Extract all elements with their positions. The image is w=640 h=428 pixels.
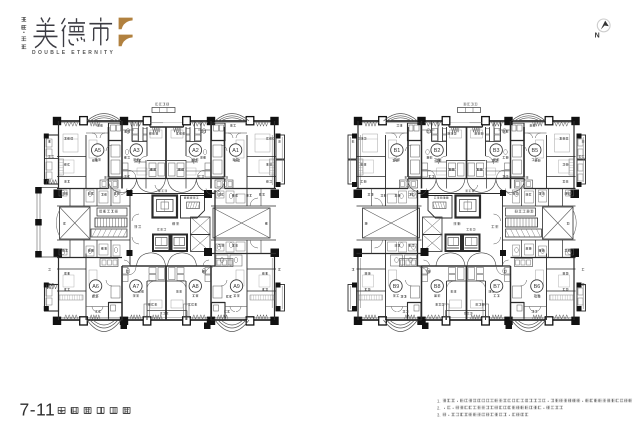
svg-text:B2: B2 bbox=[434, 148, 441, 154]
svg-text:A7: A7 bbox=[133, 284, 140, 290]
svg-text:DOUBLE ETERNITY: DOUBLE ETERNITY bbox=[32, 50, 115, 56]
svg-text:B6: B6 bbox=[534, 284, 541, 290]
svg-text:A9: A9 bbox=[233, 284, 240, 290]
svg-text:7-11: 7-11 bbox=[20, 400, 56, 420]
svg-text:2.: 2. bbox=[437, 405, 441, 410]
svg-text:A6: A6 bbox=[92, 284, 99, 290]
svg-text:A3: A3 bbox=[133, 148, 140, 154]
svg-text:B9: B9 bbox=[393, 284, 400, 290]
svg-text:1.: 1. bbox=[437, 398, 441, 403]
svg-text:A5: A5 bbox=[94, 148, 101, 154]
svg-text:B3: B3 bbox=[493, 148, 500, 154]
svg-text:N: N bbox=[595, 33, 600, 40]
svg-text:B5: B5 bbox=[532, 148, 539, 154]
svg-text:B1: B1 bbox=[394, 148, 401, 154]
svg-text:B8: B8 bbox=[434, 284, 441, 290]
svg-text:A8: A8 bbox=[192, 284, 199, 290]
svg-text:A1: A1 bbox=[232, 148, 239, 154]
svg-text:B7: B7 bbox=[493, 284, 500, 290]
svg-text:3.: 3. bbox=[437, 412, 441, 417]
svg-text:A2: A2 bbox=[192, 148, 199, 154]
